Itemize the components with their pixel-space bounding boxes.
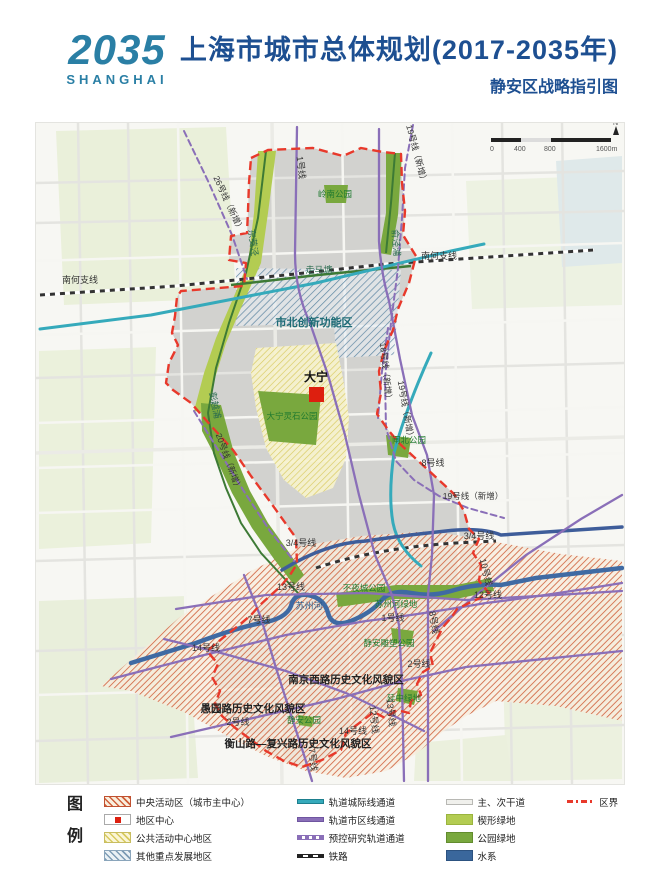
legend-item-public-center: 公共活动中心地区	[104, 831, 283, 844]
scale-tick: 800	[544, 146, 556, 153]
titles: 上海市城市总体规划(2017-2035年) 静安区战略指引图	[180, 28, 618, 97]
legend-label: 主、次干道	[478, 795, 526, 809]
park-green-swatch	[446, 832, 473, 843]
legend-label: 铁路	[329, 849, 348, 863]
legend-item-district-center: 地区中心	[104, 813, 283, 826]
legend-label: 公园绿地	[478, 831, 516, 845]
roads-swatch	[446, 799, 473, 805]
central-activity-swatch	[104, 796, 131, 807]
planned-rail-swatch	[297, 835, 324, 840]
scale-tick: 0	[490, 146, 494, 153]
label-line8-mid: 8号线	[421, 457, 444, 468]
legend-label: 地区中心	[136, 813, 174, 827]
legend-label: 楔形绿地	[478, 813, 516, 827]
public-center-swatch	[104, 832, 131, 843]
label-park-zhabei: 闸北公园	[392, 435, 426, 445]
legend: 图例 中央活动区（城市主中心） 地区中心 公共活动中心地区 其他重点发展地区	[60, 795, 640, 863]
legend-label: 轨道城际线通道	[329, 795, 396, 809]
legend-item-roads: 主、次干道	[446, 795, 554, 808]
legend-item-railway: 铁路	[297, 849, 432, 862]
label-line2-east: 2号线	[407, 658, 430, 669]
label-line19-new-s: 19号线（新增）	[443, 491, 503, 501]
page-subtitle: 静安区战略指引图	[180, 73, 618, 97]
legend-item-intercity-rail: 轨道城际线通道	[297, 795, 432, 808]
north-label: N	[613, 123, 618, 127]
district-center-swatch	[104, 814, 131, 825]
legend-column-areas: 中央活动区（城市主中心） 地区中心 公共活动中心地区 其他重点发展地区	[104, 795, 283, 863]
label-area-yuyuan: 愚园路历史文化风貌区	[201, 702, 306, 715]
label-area-hengshan: 衡山路—复兴路历史文化风貌区	[225, 737, 372, 750]
label-river-yujingpu: 俞泾浦	[390, 229, 403, 257]
legend-label: 轨道市区线通道	[329, 813, 396, 827]
label-line14-south: 14号线	[339, 725, 367, 736]
legend-item-water: 水系	[446, 849, 554, 862]
label-line34-east: 3/4号线	[464, 530, 495, 541]
scale-tick: 1600m	[596, 146, 618, 153]
label-line7-west: 7号线	[247, 614, 270, 625]
legend-title: 图例	[60, 795, 84, 863]
wedge-green-swatch	[446, 814, 473, 825]
logo-shanghai-text: SHANGHAI	[52, 72, 182, 87]
label-park-jingan-sculpture: 静安雕塑公园	[363, 638, 414, 648]
label-area-nanjing-west: 南京西路历史文化风貌区	[288, 673, 404, 686]
boundary-swatch	[567, 800, 594, 803]
legend-label: 预控研究轨道通道	[329, 831, 405, 845]
legend-item-park-green: 公园绿地	[446, 831, 554, 844]
label-park-buyecheng: 不夜城公园	[343, 583, 386, 593]
water-swatch	[446, 850, 473, 861]
intercity-rail-swatch	[297, 799, 324, 804]
label-line2-west: 2号线	[226, 716, 249, 727]
label-park-daning-lingshi: 大宁灵石公园	[266, 411, 317, 421]
legend-item-central-activity: 中央活动区（城市主中心）	[104, 795, 283, 808]
page-title: 上海市城市总体规划(2017-2035年)	[180, 28, 618, 67]
urban-rail-swatch	[297, 817, 324, 822]
label-rail-nanhe-east: 南何支线	[421, 250, 457, 261]
legend-column-boundary: 区界	[567, 795, 640, 863]
daning-center-marker	[309, 387, 324, 402]
logo-2035-text: 2035	[52, 30, 182, 70]
label-park-jingan: 静安公园	[287, 715, 321, 725]
map-canvas[interactable]: 0 400 800 1600m N 1号线 19号线（新增） 26号线（新增） …	[36, 123, 624, 784]
label-area-shibei: 市北创新功能区	[276, 315, 353, 329]
header: 2035 SHANGHAI 上海市城市总体规划(2017-2035年) 静安区战…	[0, 22, 660, 114]
legend-item-wedge-green: 楔形绿地	[446, 813, 554, 826]
legend-label: 水系	[478, 849, 497, 863]
label-rail-nanhe-west: 南何支线	[62, 274, 98, 285]
legend-item-key-development: 其他重点发展地区	[104, 849, 283, 862]
label-line14-west: 14号线	[192, 642, 220, 653]
label-center-daning: 大宁	[304, 369, 328, 384]
legend-column-rail: 轨道城际线通道 轨道市区线通道 预控研究轨道通道 铁路	[297, 795, 432, 863]
map-container: 0 400 800 1600m N 1号线 19号线（新增） 26号线（新增） …	[35, 122, 625, 785]
legend-column-land: 主、次干道 楔形绿地 公园绿地 水系	[446, 795, 554, 863]
legend-item-boundary: 区界	[567, 795, 640, 808]
logo: 2035 SHANGHAI	[52, 30, 182, 87]
legend-label: 区界	[599, 795, 618, 809]
label-line13-west: 13号线	[277, 581, 305, 592]
label-line12-east: 12号线	[474, 589, 502, 600]
legend-label: 其他重点发展地区	[136, 849, 212, 863]
legend-label: 公共活动中心地区	[136, 831, 212, 845]
scale-tick: 400	[514, 146, 526, 153]
legend-item-planned-rail: 预控研究轨道通道	[297, 831, 432, 844]
legend-label: 中央活动区（城市主中心）	[136, 795, 250, 809]
legend-item-urban-rail: 轨道市区线通道	[297, 813, 432, 826]
label-line34-west: 3/4号线	[286, 537, 317, 548]
label-green-suzhou: 苏州河绿地	[375, 599, 418, 609]
key-development-swatch	[104, 850, 131, 861]
label-park-lingnan: 岭南公园	[318, 189, 352, 199]
page: 2035 SHANGHAI 上海市城市总体规划(2017-2035年) 静安区战…	[0, 0, 660, 872]
label-river-suzhou: 苏州河	[295, 600, 322, 611]
label-river-zoumatang: 走马塘	[305, 264, 332, 275]
label-line1-south: 1号线	[381, 612, 404, 623]
railway-swatch	[297, 854, 324, 858]
